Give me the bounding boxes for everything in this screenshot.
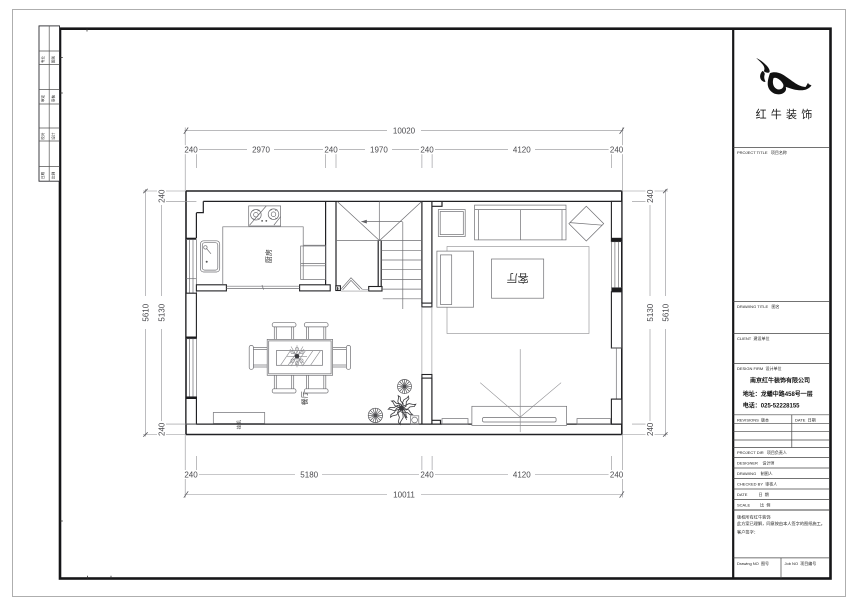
svg-text:厨房: 厨房 xyxy=(264,249,273,263)
svg-text:校对: 校对 xyxy=(40,132,45,140)
svg-text:日期: 日期 xyxy=(40,172,45,180)
svg-text:240: 240 xyxy=(646,422,655,436)
svg-text:5130: 5130 xyxy=(646,303,655,321)
svg-text:240: 240 xyxy=(184,146,198,155)
svg-text:DATE 日期: DATE 日期 xyxy=(795,416,816,422)
svg-text:红牛装饰: 红牛装饰 xyxy=(756,107,817,121)
svg-text:240: 240 xyxy=(646,189,655,203)
svg-text:DATE 日 期: DATE 日 期 xyxy=(737,491,769,497)
svg-text:此方案已理解，同意按由本人签字的图纸施工。: 此方案已理解，同意按由本人签字的图纸施工。 xyxy=(737,520,825,527)
svg-text:Job NO 项目编号: Job NO 项目编号 xyxy=(785,560,817,566)
svg-text:比例: 比例 xyxy=(50,172,55,180)
svg-text:CLIENT 建设单位: CLIENT 建设单位 xyxy=(737,335,769,341)
svg-text:DESIGN FIRM 设计单位: DESIGN FIRM 设计单位 xyxy=(737,365,781,371)
svg-text:240: 240 xyxy=(158,422,167,436)
svg-text:240: 240 xyxy=(324,146,338,155)
svg-text:4120: 4120 xyxy=(513,470,531,479)
svg-text:客户签字：: 客户签字： xyxy=(737,529,758,536)
svg-text:REVISIONS 版本: REVISIONS 版本 xyxy=(737,416,769,422)
svg-text:专业: 专业 xyxy=(40,56,45,64)
svg-text:Drawing NO 图号: Drawing NO 图号 xyxy=(737,560,769,566)
svg-text:5130: 5130 xyxy=(158,303,167,321)
svg-text:SCALE 比 例: SCALE 比 例 xyxy=(737,502,770,508)
svg-text:240: 240 xyxy=(610,470,624,479)
svg-text:10020: 10020 xyxy=(393,127,416,136)
svg-text:4120: 4120 xyxy=(513,146,531,155)
svg-text:PROJECT TITLE 项目名称: PROJECT TITLE 项目名称 xyxy=(737,149,787,155)
svg-text:5610: 5610 xyxy=(661,303,670,321)
svg-text:餐厅: 餐厅 xyxy=(300,391,309,405)
svg-text:南京红牛装饰有限公司: 南京红牛装饰有限公司 xyxy=(750,377,810,385)
svg-text:5610: 5610 xyxy=(142,303,151,321)
svg-text:PROJECT DIR 项目负责人: PROJECT DIR 项目负责人 xyxy=(737,449,787,455)
svg-text:客厅: 客厅 xyxy=(507,272,529,286)
svg-text:DESIGNER 设计师: DESIGNER 设计师 xyxy=(737,460,774,466)
svg-text:1970: 1970 xyxy=(370,146,388,155)
svg-text:10011: 10011 xyxy=(393,490,415,499)
svg-text:240: 240 xyxy=(420,470,434,479)
svg-text:地址：龙蟠中路458号一层: 地址：龙蟠中路458号一层 xyxy=(743,390,813,398)
svg-text:版权所有红牛装饰: 版权所有红牛装饰 xyxy=(737,513,771,520)
svg-text:DRAWING 制图人: DRAWING 制图人 xyxy=(737,470,773,476)
svg-text:审定: 审定 xyxy=(40,95,45,103)
svg-text:DRAWING TITLE 图名: DRAWING TITLE 图名 xyxy=(737,303,779,309)
svg-text:审核: 审核 xyxy=(50,95,55,103)
svg-text:2970: 2970 xyxy=(252,146,270,155)
svg-text:图别: 图别 xyxy=(50,56,55,64)
svg-text:电话：025-52228155: 电话：025-52228155 xyxy=(743,402,800,410)
svg-text:挂机: 挂机 xyxy=(236,420,243,430)
svg-text:5180: 5180 xyxy=(300,470,318,479)
svg-text:设计: 设计 xyxy=(50,132,55,140)
svg-text:240: 240 xyxy=(420,146,434,155)
svg-text:240: 240 xyxy=(158,189,167,203)
svg-text:CHECKED BY 审核人: CHECKED BY 审核人 xyxy=(737,481,777,487)
svg-text:240: 240 xyxy=(184,470,198,479)
svg-text:240: 240 xyxy=(610,146,624,155)
